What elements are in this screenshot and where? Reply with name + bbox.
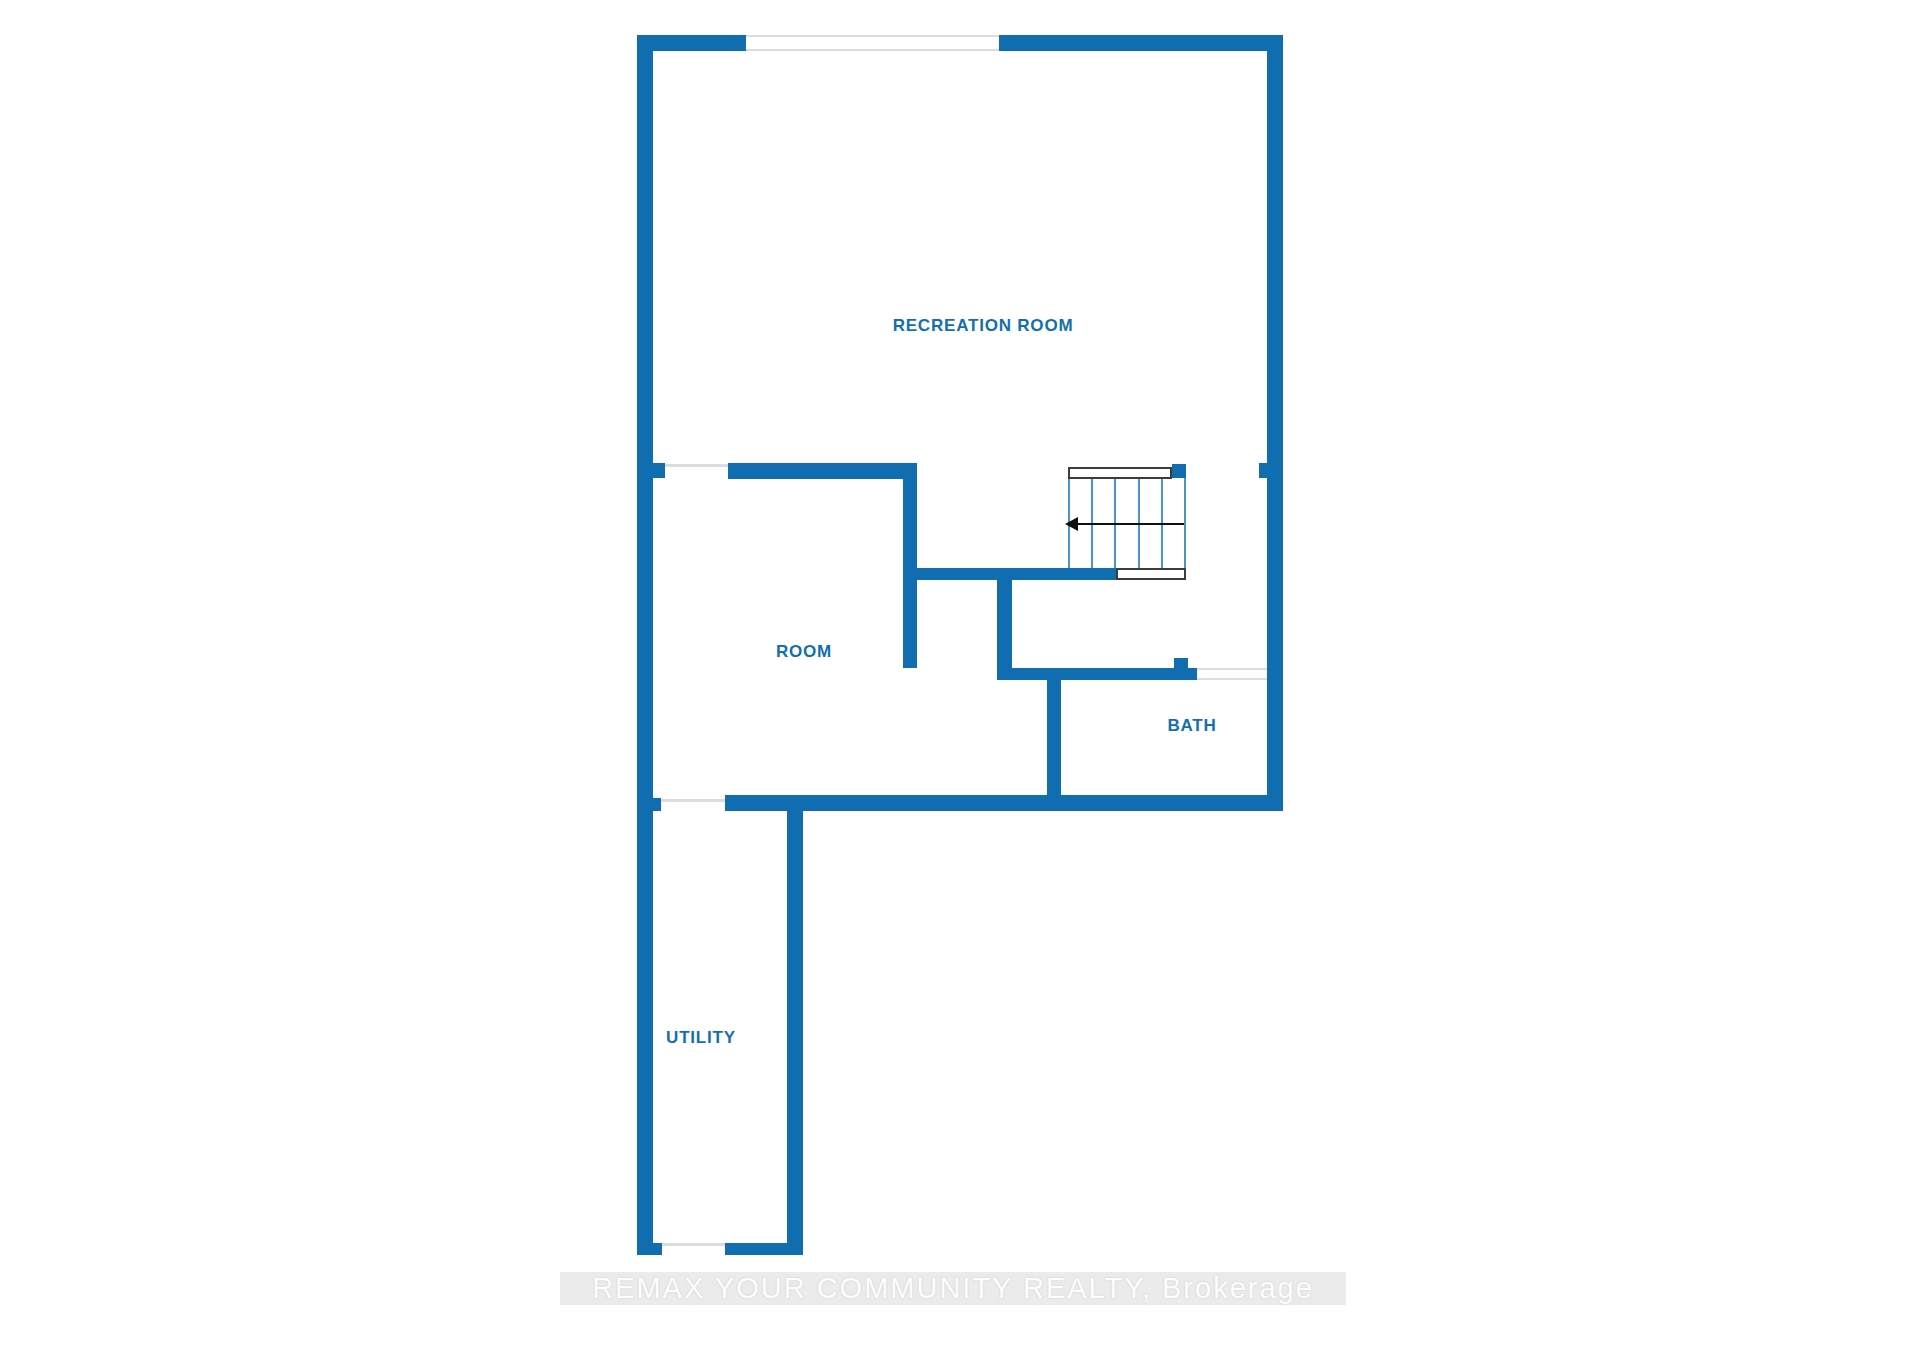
- stair-top-landing: [1068, 467, 1172, 479]
- wall-bottom-left-stub: [653, 798, 661, 811]
- wall-right-notch: [1259, 463, 1268, 478]
- wall-top-left-segment: [637, 35, 746, 51]
- window-top: [746, 35, 999, 51]
- wall-right-exterior: [1267, 35, 1283, 811]
- wall-left-exterior: [637, 35, 653, 1255]
- stair-wall-stub: [1172, 464, 1186, 478]
- wall-utility-bottom-left: [637, 1243, 662, 1255]
- stair-arrow-shaft: [1078, 523, 1184, 525]
- stair-direction-arrow-icon: [1065, 517, 1078, 531]
- wall-top-right-segment: [999, 35, 1283, 51]
- label-room: ROOM: [776, 642, 832, 662]
- window-room-bottom: [661, 799, 725, 802]
- window-utility-bottom: [662, 1243, 725, 1246]
- label-utility: UTILITY: [666, 1028, 736, 1048]
- stair-bottom-landing: [1116, 568, 1186, 580]
- wall-utility-bottom-right: [725, 1243, 803, 1255]
- window-bath: [1197, 668, 1267, 680]
- window-mid-left: [665, 464, 728, 467]
- brokerage-watermark: REMAX YOUR COMMUNITY REALTY, Brokerage: [560, 1272, 1346, 1305]
- floor-plan: RECREATION ROOM ROOM BATH UTILITY REMAX …: [0, 0, 1920, 1356]
- wall-room-top: [728, 463, 917, 479]
- wall-bath-left: [1047, 678, 1061, 797]
- wall-hall-vertical: [997, 578, 1012, 670]
- label-recreation-room: RECREATION ROOM: [893, 316, 1074, 336]
- wall-bottom-main: [725, 795, 1283, 811]
- wall-bath-top-stub: [1174, 658, 1188, 668]
- wall-bath-top: [997, 668, 1197, 680]
- label-bath: BATH: [1167, 716, 1216, 736]
- wall-room-right: [903, 463, 917, 668]
- wall-mid-left-stub: [653, 463, 665, 478]
- wall-utility-right: [787, 795, 803, 1255]
